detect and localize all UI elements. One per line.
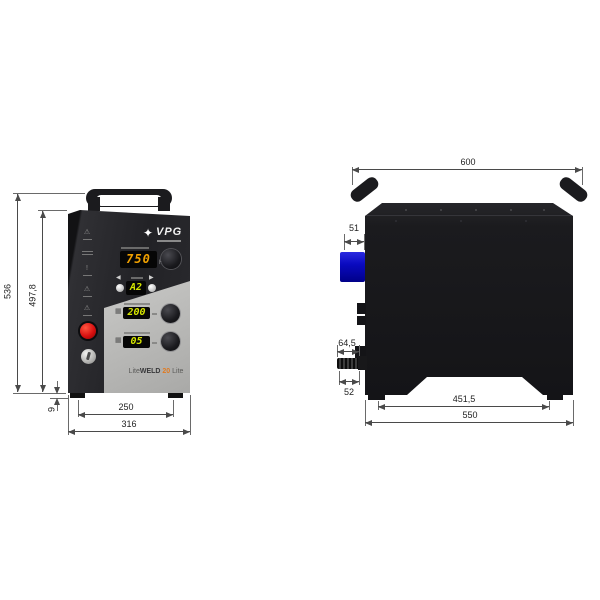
dim-body-height: 497,8 — [28, 276, 39, 316]
dim-line-total-height — [17, 194, 18, 392]
text-lines-icon — [82, 251, 93, 252]
warning-triangle-icon: ⚠ — [80, 305, 94, 313]
dim-connector-depth: 51 — [344, 223, 364, 234]
front-handle-leg — [88, 197, 100, 211]
side-body-seam — [365, 215, 573, 216]
screw-icon — [475, 209, 477, 211]
dim-body-depth: 550 — [450, 410, 490, 421]
warning-caption — [83, 239, 92, 240]
frequency-knob — [161, 249, 181, 269]
power-label-text — [124, 303, 150, 305]
warning-triangle-icon: ⚠ — [80, 286, 94, 294]
brand-name: VPG — [156, 226, 182, 238]
extension-line — [190, 395, 191, 435]
model-prefix: Lite — [129, 368, 140, 375]
connector-nub — [357, 303, 366, 314]
model-name: LiteWELD 20 Lite — [124, 368, 188, 375]
extension-line — [364, 234, 365, 250]
dim-line-fitting-depth — [337, 351, 359, 352]
extension-line — [173, 400, 174, 417]
side-body — [365, 203, 573, 400]
power-connector — [340, 252, 365, 282]
model-suffix: Lite — [172, 368, 183, 375]
model-accent: 20 — [162, 368, 170, 375]
brand-star-icon: ✦ — [141, 226, 155, 240]
dim-total-height: 536 — [3, 272, 14, 312]
technical-drawing: ✦ VPG 750 Hz ◀ ▶ A2 ▦ 200 ▦ 05 ⚠ ! ⚠ — [0, 0, 600, 600]
dim-line-total-width — [352, 169, 582, 170]
screw-icon — [460, 220, 462, 222]
dim-total-width: 316 — [108, 419, 150, 430]
extension-line — [573, 400, 574, 426]
power-display: 200 — [123, 307, 150, 319]
dim-foot-span: 451,5 — [440, 394, 488, 405]
extension-line — [13, 193, 85, 194]
side-handle-right — [557, 175, 589, 204]
side-handle-left — [348, 175, 380, 204]
power-unit-text — [152, 313, 157, 315]
screw-icon — [395, 220, 397, 222]
front-handle-hole — [96, 195, 162, 206]
brand-sub-text — [157, 240, 181, 242]
emergency-stop-button — [80, 323, 96, 339]
front-foot — [168, 393, 183, 398]
nav-label-text — [131, 277, 143, 279]
front-foot — [70, 393, 85, 398]
power-knob — [161, 304, 180, 323]
warning-caption — [83, 296, 92, 297]
dim-line-total-width — [68, 431, 190, 432]
hose-barb-collar — [358, 356, 367, 370]
dim-line-foot-span — [378, 406, 549, 407]
screw-icon — [440, 209, 442, 211]
text-lines-icon — [82, 254, 93, 255]
time-label-text — [124, 332, 150, 334]
time-icon: ▦ — [115, 336, 122, 344]
nav-left-button — [116, 284, 124, 292]
dim-line-body-depth — [365, 422, 573, 423]
screw-icon — [405, 209, 407, 211]
nav-right-button — [148, 284, 156, 292]
nav-right-arrow-icon: ▶ — [149, 274, 154, 281]
dim-line-foot-span — [78, 414, 173, 415]
dim-foot-span: 250 — [105, 402, 147, 413]
freq-label-text — [121, 247, 149, 249]
exclamation-icon: ! — [80, 265, 94, 273]
connector-nub — [357, 316, 366, 325]
warning-caption — [83, 315, 92, 316]
screw-icon — [543, 209, 545, 211]
time-knob — [161, 332, 180, 351]
nav-left-arrow-icon: ◀ — [116, 274, 121, 281]
dim-fitting-gap: 52 — [338, 387, 360, 398]
warning-triangle-icon: ⚠ — [80, 229, 94, 237]
power-icon: ▦ — [115, 307, 122, 315]
program-display: A2 — [126, 281, 146, 295]
warning-caption — [83, 275, 92, 276]
front-handle-leg — [158, 197, 170, 211]
model-bold: WELD — [140, 368, 161, 375]
extension-line — [549, 401, 550, 410]
time-unit-text — [152, 342, 157, 344]
dim-total-width: 600 — [448, 157, 488, 168]
screw-icon — [525, 220, 527, 222]
dim-line-connector-depth — [344, 241, 364, 242]
frequency-display: 750 — [120, 251, 157, 268]
time-display: 05 — [123, 336, 150, 348]
dim-line-body-height — [42, 211, 43, 392]
dim-line-fitting-gap — [339, 381, 359, 382]
screw-icon — [510, 209, 512, 211]
dim-foot-height: 9 — [47, 390, 58, 430]
extension-line — [359, 371, 360, 385]
dim-fitting-depth: 64,5 — [332, 338, 362, 349]
extension-line — [582, 167, 583, 185]
